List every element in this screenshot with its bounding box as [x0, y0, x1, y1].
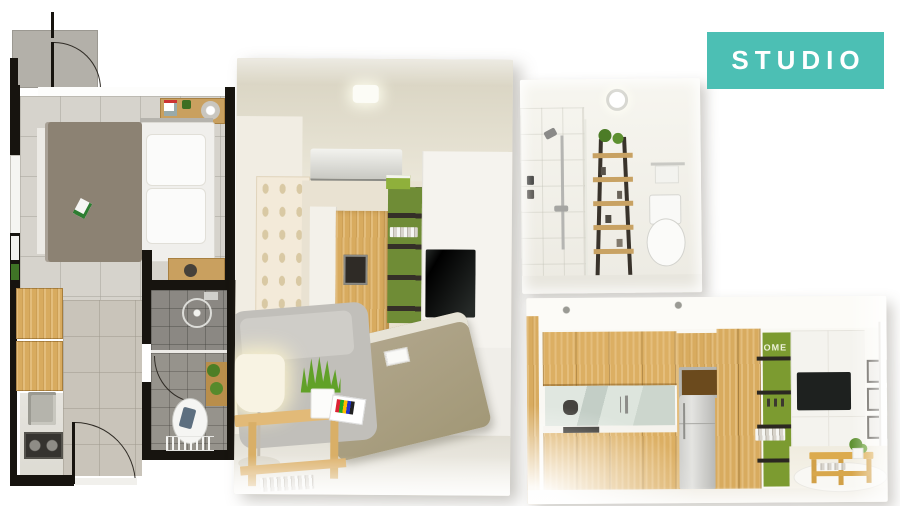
ceiling-light: [606, 89, 628, 111]
studio-title-label: STUDIO: [725, 45, 865, 76]
kettle: [563, 400, 578, 415]
studio-title-badge: STUDIO: [707, 32, 884, 89]
floor-plan: [10, 8, 236, 492]
towel-rack-plan: [166, 436, 214, 451]
bathroom-wall-bottom: [142, 450, 236, 460]
base-cabinets: [543, 432, 677, 490]
nightstand-magazine: [164, 100, 177, 116]
green-shelf-unit: [387, 187, 422, 323]
ceiling-downlight: [353, 85, 379, 103]
toilet-bowl: [646, 218, 686, 266]
bathroom-floor: [522, 274, 702, 294]
nightstand-plant: [182, 100, 191, 109]
shower-control: [527, 176, 534, 185]
bathroom-wall-top: [142, 280, 236, 290]
bed-side-runner: [37, 128, 45, 254]
shelf-plant: [598, 129, 611, 142]
table-books: [817, 463, 845, 470]
magazine: [329, 394, 366, 425]
wall-shelf: [757, 390, 793, 394]
door-frame-left: [526, 316, 539, 504]
shower-shelf: [204, 292, 218, 300]
lamp-shade: [235, 354, 285, 412]
kitchen-stove: [24, 432, 63, 459]
magazine-cover-art: [335, 399, 355, 414]
wall-left-upper: [10, 85, 20, 155]
shower-valve: [554, 205, 568, 211]
bathroom-wall-left-lower: [142, 382, 151, 460]
slide-canvas: { "slide": { "title_badge": { "label": "…: [0, 0, 900, 506]
shower-control: [527, 190, 534, 199]
ladder-shelf: [593, 225, 633, 230]
shelf-cups: [767, 398, 787, 406]
shelf-item: [617, 239, 623, 247]
bed-blanket: [45, 122, 142, 262]
built-in-oven: [343, 255, 367, 285]
faucet: [625, 396, 628, 414]
shelf-top-boxes: [386, 175, 410, 189]
refrigerator: [679, 395, 716, 489]
shelf-item: [601, 167, 606, 175]
shelf-letters: OME: [764, 342, 788, 352]
wall-shelf: [757, 458, 793, 462]
wall-tv: [797, 372, 851, 410]
wall-shelf: [757, 356, 793, 360]
side-table-leg: [248, 422, 256, 486]
living-area-photo: [234, 58, 513, 496]
glass-panel-edge: [584, 119, 588, 277]
upper-cabinets: [543, 331, 677, 386]
ladder-shelf: [593, 177, 633, 182]
wall-plant: [11, 264, 19, 280]
fridge-handle: [683, 403, 685, 439]
bathroom-plant: [207, 364, 220, 377]
kitchen-sink: [28, 392, 56, 425]
bathroom-photo: [520, 78, 702, 294]
shelf-books: [390, 227, 418, 237]
bed-pillow: [146, 134, 206, 186]
shelf-books: [755, 428, 785, 440]
ladder-shelf: [593, 153, 633, 158]
table-plant-pot: [852, 448, 863, 459]
bathroom-wall-left-upper: [142, 280, 151, 344]
ceiling: [526, 296, 886, 331]
bed-pillow: [146, 188, 206, 244]
entry-threshold: [75, 478, 137, 485]
balcony-door-stub: [51, 12, 54, 38]
kitchen-photo: OME: [526, 296, 887, 505]
wall-tv: [425, 249, 475, 317]
shelf-item: [605, 215, 611, 223]
wardrobe: [717, 329, 762, 489]
shelf-plant: [612, 133, 623, 144]
coffee-table-shelf: [813, 471, 870, 476]
microwave: [679, 367, 721, 398]
bathroom-plant: [210, 382, 223, 395]
ladder-shelf: [593, 201, 633, 206]
wall-bottom-left: [10, 475, 74, 486]
bathroom-plan: [142, 272, 236, 460]
shelf-item: [617, 191, 622, 199]
kitchen-cabinet: [16, 341, 63, 391]
towel: [655, 165, 679, 183]
ladder-shelf: [594, 249, 634, 254]
side-table-leg: [330, 421, 338, 479]
kitchen-cabinet: [16, 288, 63, 339]
ladder-rail: [596, 139, 603, 277]
shower-head-symbol: [182, 298, 212, 328]
wall-ac-box: [11, 236, 19, 260]
